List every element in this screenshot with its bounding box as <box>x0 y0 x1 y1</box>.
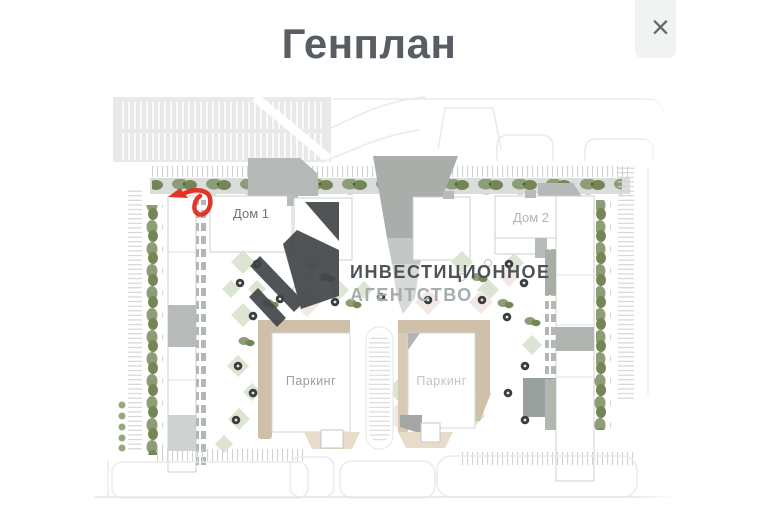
parking-left-label: Паркинг <box>272 374 350 388</box>
building-dom1-wing <box>146 196 206 472</box>
watermark-line1: ИНВЕСТИЦИОННОЕ <box>350 262 551 283</box>
building-block-3 <box>413 191 470 260</box>
parking-lot-top-left <box>113 97 331 162</box>
street-parking-left <box>128 188 142 450</box>
watermark-line2: АГЕНТСТВО <box>350 285 551 306</box>
parking-strip-middle <box>366 327 393 449</box>
genplan-modal: Генплан × <box>0 0 770 510</box>
watermark: ИНВЕСТИЦИОННОЕ АГЕНТСТВО <box>350 262 551 305</box>
trees-left-street <box>119 402 126 452</box>
building-dom2-wing <box>545 196 611 481</box>
site-plan: Дом 1 Дом 2 Паркинг Паркинг ИНВЕСТИЦИОНН… <box>0 0 770 510</box>
street-parking-right <box>618 165 634 400</box>
sidewalk-hatch-bottom-left <box>155 449 305 461</box>
site-plan-drawing <box>0 0 770 510</box>
parking-right-label: Паркинг <box>408 374 475 388</box>
dom2-label: Дом 2 <box>495 210 567 225</box>
sidewalk-hatch-bottom-right <box>460 452 636 465</box>
dom1-label: Дом 1 <box>210 206 292 221</box>
